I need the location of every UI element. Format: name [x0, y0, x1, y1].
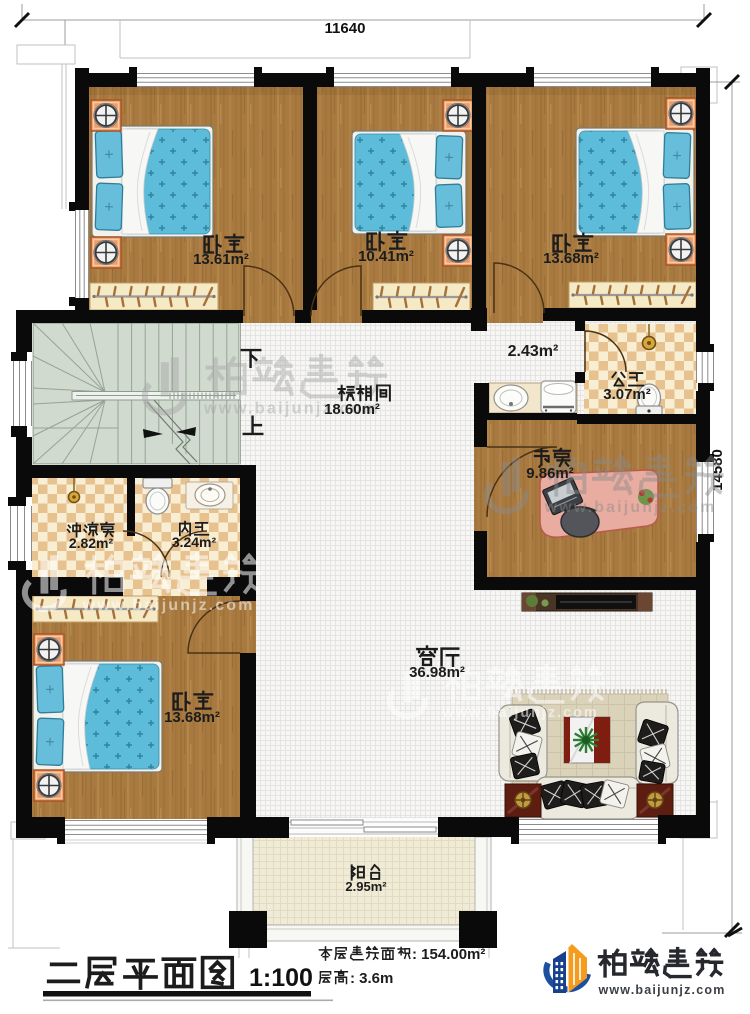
- svg-text:2.82m²: 2.82m²: [69, 535, 114, 551]
- svg-text:13.68m²: 13.68m²: [543, 250, 599, 267]
- svg-text:www.baijunjz.com: www.baijunjz.com: [597, 983, 725, 997]
- svg-text:1:100: 1:100: [249, 964, 313, 992]
- svg-text:www.baijunjz.com: www.baijunjz.com: [544, 499, 717, 516]
- svg-text:: 3.6m: : 3.6m: [350, 970, 393, 987]
- svg-text:www.baijunjz.com: www.baijunjz.com: [82, 597, 255, 614]
- svg-text:www.baijunjz.com: www.baijunjz.com: [442, 705, 599, 721]
- svg-text:2.43m²: 2.43m²: [508, 343, 559, 360]
- svg-text:3.07m²: 3.07m²: [603, 386, 651, 403]
- svg-text:9.86m²: 9.86m²: [526, 465, 574, 482]
- svg-text:18.60m²: 18.60m²: [324, 401, 380, 418]
- svg-text:2.95m²: 2.95m²: [345, 879, 387, 894]
- svg-text:11640: 11640: [325, 20, 366, 37]
- svg-text:10.41m²: 10.41m²: [358, 248, 414, 265]
- svg-text:13.68m²: 13.68m²: [164, 709, 220, 726]
- svg-text:: 154.00m²: : 154.00m²: [412, 946, 485, 963]
- svg-text:13.61m²: 13.61m²: [193, 251, 249, 268]
- svg-text:3.24m²: 3.24m²: [172, 534, 217, 550]
- svg-text:36.98m²: 36.98m²: [409, 664, 465, 681]
